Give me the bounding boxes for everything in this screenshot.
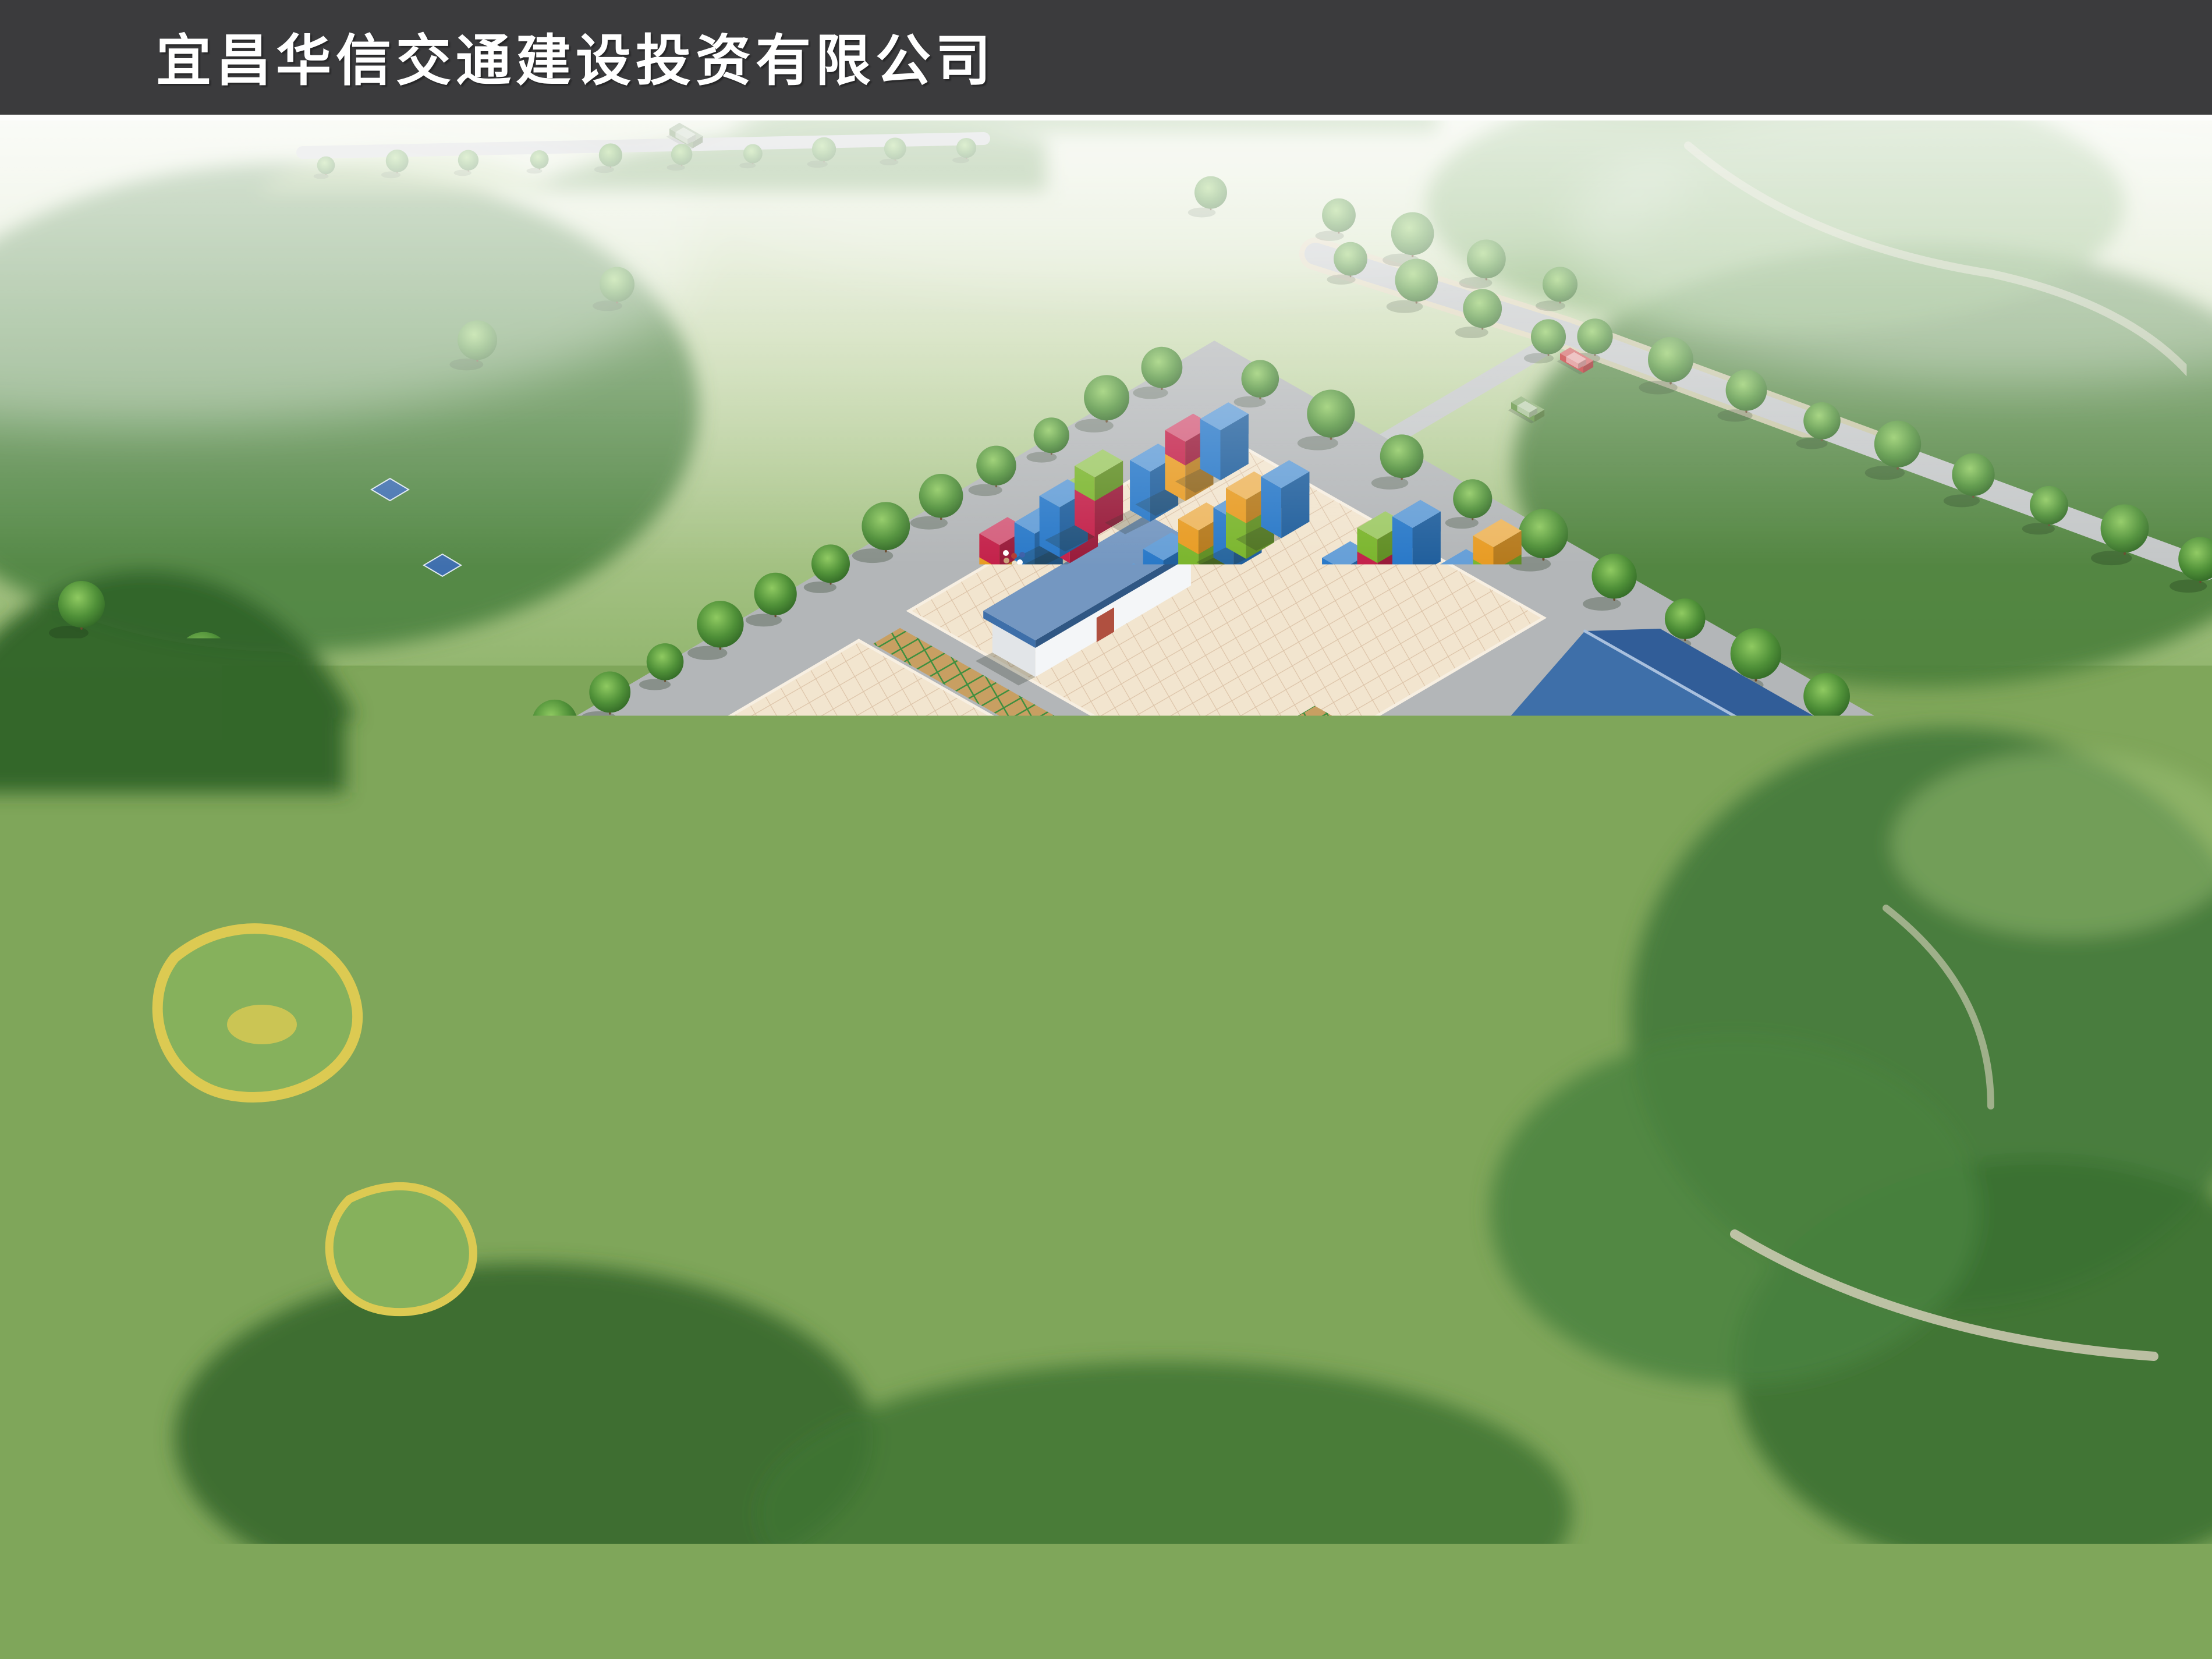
tree-icon xyxy=(1187,1366,1225,1403)
tree-icon xyxy=(1845,923,1894,972)
person xyxy=(1191,1067,1197,1073)
tree-shadow xyxy=(1005,1132,1045,1146)
tree-icon xyxy=(532,700,577,745)
tree-icon xyxy=(1543,1111,1584,1153)
tree-shadow xyxy=(614,1443,646,1454)
tree-icon xyxy=(461,1180,497,1216)
red-globe-logo-icon xyxy=(1486,1565,1544,1643)
aerial-rendering-viewport xyxy=(0,120,2212,1544)
person xyxy=(753,952,758,958)
tree-icon xyxy=(1803,673,1850,719)
tree-icon xyxy=(168,1014,207,1053)
person xyxy=(889,923,895,928)
tree-icon xyxy=(755,1346,789,1380)
person xyxy=(881,927,887,933)
tree-shadow xyxy=(243,1239,281,1252)
person xyxy=(1427,1067,1433,1073)
tree-icon xyxy=(2121,609,2163,651)
aerial-rendering xyxy=(0,120,2212,1544)
tree-shadow xyxy=(520,1255,559,1268)
tree-icon xyxy=(881,1013,923,1055)
tree-icon xyxy=(1896,1475,1945,1524)
tree-icon xyxy=(605,1256,646,1298)
footer-separator xyxy=(0,1544,2212,1550)
tree-icon xyxy=(24,938,58,972)
person xyxy=(1802,921,1808,927)
person xyxy=(1341,857,1347,863)
tree-shadow xyxy=(177,1198,207,1208)
tree-icon xyxy=(1042,1498,1086,1542)
tree-icon xyxy=(1045,1302,1083,1340)
tree-shadow xyxy=(1161,1460,1190,1470)
tree-icon xyxy=(327,1240,367,1281)
tree-shadow xyxy=(864,1522,903,1536)
tree-icon xyxy=(1908,892,1952,937)
tree-icon xyxy=(1877,718,1919,760)
tree-shadow xyxy=(1018,1396,1047,1407)
tree-icon xyxy=(1148,1488,1179,1519)
tree-icon xyxy=(1005,1424,1036,1455)
tree-icon xyxy=(1225,1214,1261,1250)
tree-icon xyxy=(1213,1316,1243,1346)
person xyxy=(897,921,903,927)
drawing-caption: 宜昌市货运中心 鸟瞰图 xyxy=(132,1550,821,1659)
person xyxy=(1357,852,1363,857)
tree-icon xyxy=(810,970,857,1016)
tree-icon xyxy=(121,1079,182,1139)
tree-icon xyxy=(543,826,578,862)
person xyxy=(1558,943,1564,949)
tree-icon xyxy=(177,632,231,686)
tree-icon xyxy=(1972,861,2012,901)
tree-icon xyxy=(1964,1156,2018,1210)
tree-icon xyxy=(754,573,797,615)
page-title: 宜昌华信交通建设投资有限公司 xyxy=(156,0,995,115)
person xyxy=(881,920,887,926)
tree-icon xyxy=(471,1317,516,1362)
tree-icon xyxy=(1781,955,1835,1008)
person xyxy=(1098,690,1104,696)
tree-icon xyxy=(93,969,136,1012)
tree-shadow xyxy=(1588,1114,1632,1130)
presentation-board: 宜昌华信交通建设投资有限公司 xyxy=(0,0,2212,1659)
tree-shadow xyxy=(672,1337,704,1348)
footer-bar: 宜昌市货运中心 鸟瞰图 北京东方华太建筑设计工程有限责 xyxy=(0,1550,2212,1659)
tree-icon xyxy=(1085,1128,1129,1172)
tree-shadow xyxy=(2170,579,2207,593)
tree-icon xyxy=(184,1164,219,1199)
person xyxy=(1175,1065,1181,1071)
tree-icon xyxy=(973,1467,1008,1502)
tree-icon xyxy=(243,1059,278,1094)
company-logo xyxy=(1486,1565,1544,1643)
person xyxy=(1786,927,1792,933)
person xyxy=(1304,738,1310,744)
tree-icon xyxy=(676,898,718,940)
tree-icon xyxy=(299,1284,353,1338)
tree-icon xyxy=(589,672,630,713)
tree-icon xyxy=(279,686,326,732)
person xyxy=(1349,853,1355,859)
tree-icon xyxy=(387,1135,427,1175)
tree-icon xyxy=(1360,1221,1399,1260)
tree-icon xyxy=(402,1285,438,1321)
tree-shadow xyxy=(689,1484,718,1494)
tree-icon xyxy=(58,581,105,628)
tree-icon xyxy=(606,855,651,901)
tree-icon xyxy=(545,1438,596,1489)
person xyxy=(1551,948,1557,953)
header-bar: 宜昌华信交通建设投资有限公司 xyxy=(0,0,2212,115)
person xyxy=(1296,739,1302,745)
tree-icon xyxy=(1479,1143,1525,1189)
person xyxy=(1288,736,1294,742)
tree-shadow xyxy=(1352,1259,1385,1271)
tree-icon xyxy=(481,742,517,778)
person xyxy=(1183,1076,1189,1082)
tree-icon xyxy=(898,1422,937,1461)
tree-icon xyxy=(252,1196,296,1240)
person xyxy=(1794,923,1800,928)
tree-icon xyxy=(696,1451,729,1485)
tree-icon xyxy=(1025,1363,1059,1398)
tree-icon xyxy=(823,1377,866,1420)
tree-icon xyxy=(680,1301,718,1339)
tree-icon xyxy=(1791,1025,1842,1076)
tree-shadow xyxy=(748,1378,777,1388)
tree-icon xyxy=(1168,1427,1202,1461)
tree-shadow xyxy=(454,1215,485,1226)
header-separator xyxy=(0,115,2212,120)
person xyxy=(1091,694,1097,700)
tree-icon xyxy=(2015,792,2063,840)
tree-icon xyxy=(1731,628,1781,679)
tree-icon xyxy=(764,1483,807,1526)
tree-shadow xyxy=(1207,1345,1232,1354)
tree-shadow xyxy=(1076,1171,1114,1184)
tree-icon xyxy=(311,1090,356,1135)
tree-icon xyxy=(1632,1401,1686,1454)
atmospheric-haze xyxy=(0,120,2212,570)
person xyxy=(769,953,775,959)
company-name-cn: 北京东方华太建筑设计工程有限责任公司武汉分公司 xyxy=(1555,1567,2198,1607)
tree-shadow xyxy=(395,1321,426,1332)
tree-icon xyxy=(647,643,684,680)
tree-icon xyxy=(951,1056,990,1094)
tree-icon xyxy=(873,1477,920,1524)
person xyxy=(1341,850,1346,856)
person xyxy=(1559,951,1565,956)
tree-icon xyxy=(697,601,743,647)
tree-icon xyxy=(546,1362,587,1403)
tree-icon xyxy=(34,1075,77,1118)
person xyxy=(1566,942,1572,948)
tree-shadow xyxy=(668,938,703,950)
person xyxy=(1419,1068,1424,1074)
tree-icon xyxy=(1725,1002,1768,1044)
person xyxy=(1175,1073,1181,1079)
tree-icon xyxy=(1665,598,1706,639)
tree-icon xyxy=(530,1211,575,1257)
person xyxy=(1786,920,1792,926)
person xyxy=(1090,687,1096,693)
tree-shadow xyxy=(1964,899,1998,911)
person xyxy=(753,959,759,965)
tree-icon xyxy=(1070,1253,1100,1283)
person xyxy=(1183,1068,1189,1074)
tree-icon xyxy=(1015,1085,1063,1133)
company-name-en: BEIJING DONGFANG HUATAI ARCHITECTURAL & … xyxy=(1598,1610,2212,1628)
tree-icon xyxy=(621,1406,659,1444)
tree-shadow xyxy=(966,1501,996,1511)
tree-icon xyxy=(1662,1033,1709,1080)
tree-icon xyxy=(1155,1171,1195,1211)
flowerbed-center xyxy=(227,1005,297,1044)
tree-icon xyxy=(1416,1174,1466,1224)
person xyxy=(1550,940,1556,946)
person xyxy=(1410,1065,1416,1071)
person xyxy=(761,962,767,968)
tree-icon xyxy=(2107,913,2154,959)
tree-icon xyxy=(1598,1064,1650,1116)
tree-icon xyxy=(1949,763,1987,800)
tree-shadow xyxy=(1780,1074,1824,1089)
tree-shadow xyxy=(1147,1210,1181,1222)
person xyxy=(761,955,767,960)
person xyxy=(1107,689,1112,694)
